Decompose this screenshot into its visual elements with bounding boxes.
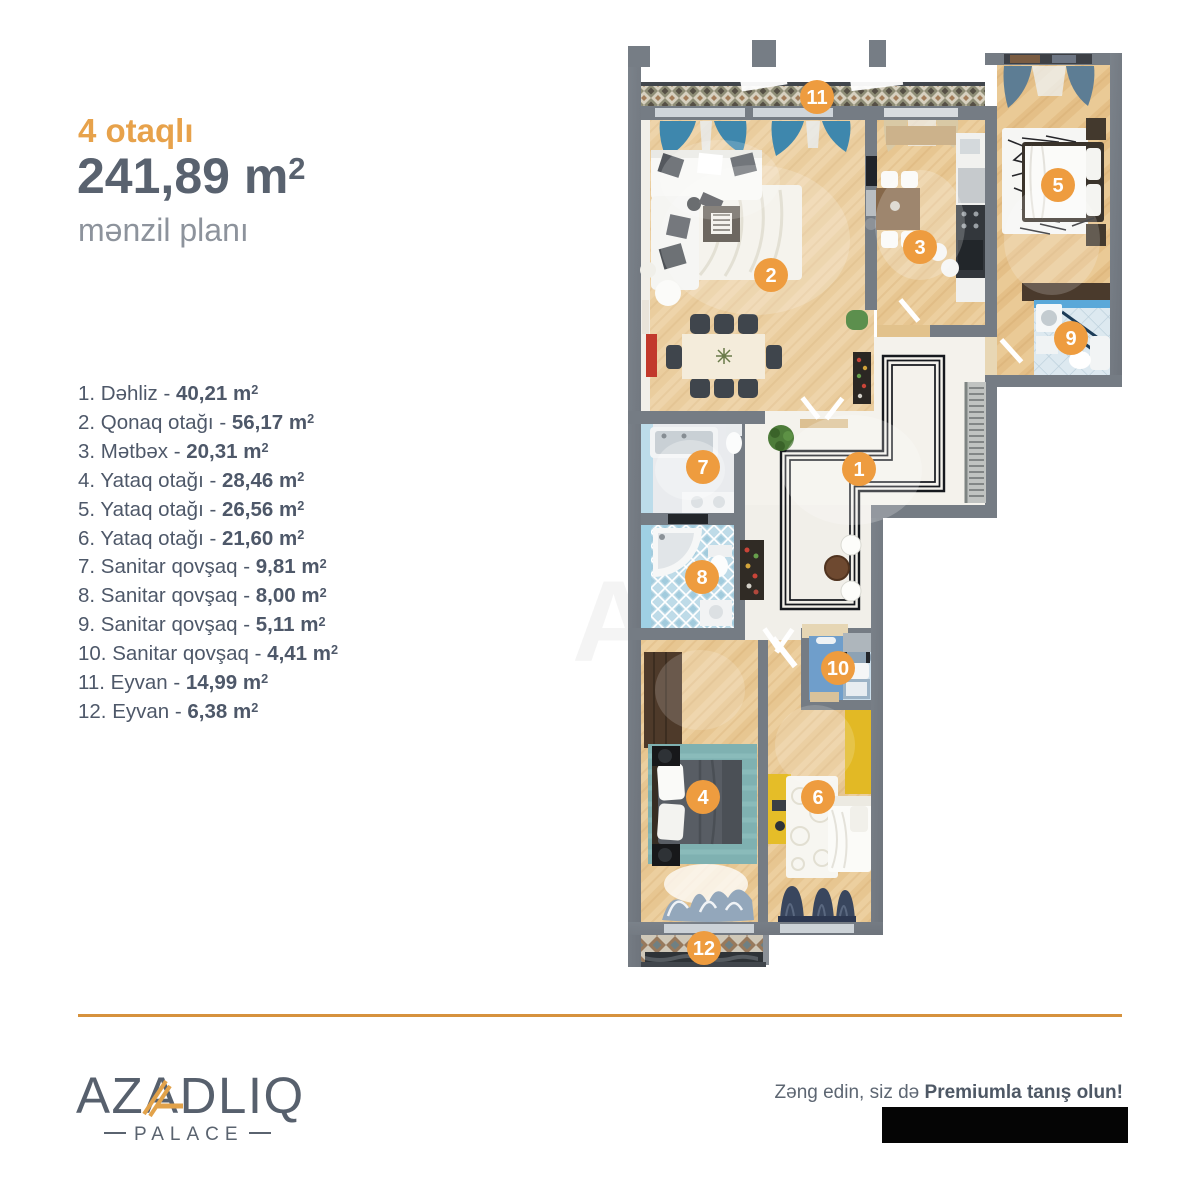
svg-text:12: 12 — [693, 938, 715, 960]
svg-text:5: 5 — [1052, 175, 1063, 197]
svg-text:6: 6 — [812, 787, 823, 809]
svg-text:4: 4 — [697, 787, 709, 809]
svg-text:9: 9 — [1065, 328, 1076, 350]
svg-text:11: 11 — [806, 87, 827, 109]
svg-text:2: 2 — [765, 265, 776, 287]
svg-text:3: 3 — [914, 237, 925, 259]
svg-text:1: 1 — [853, 459, 864, 481]
svg-text:10: 10 — [827, 658, 849, 680]
svg-text:7: 7 — [697, 457, 708, 479]
svg-text:8: 8 — [696, 567, 707, 589]
